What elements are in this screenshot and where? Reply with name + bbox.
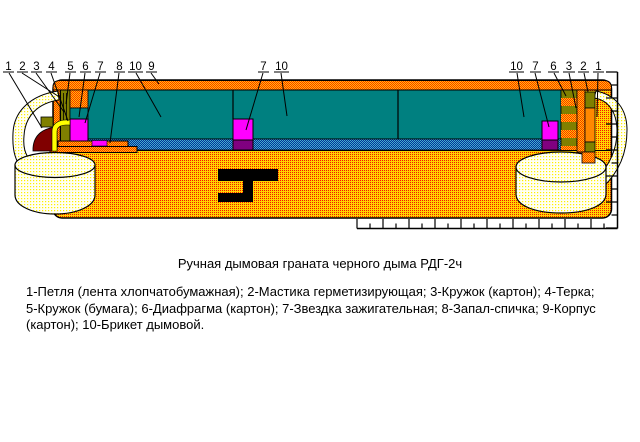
part-label-9: 9: [148, 61, 154, 73]
grenade-diagram: 1 2 3 4 5 6 7 8 10 9 7 10 10 7 6 3 2 1: [0, 0, 640, 248]
part-label-1: 1: [5, 61, 11, 73]
cardboard-disc-right-top: [585, 92, 595, 108]
cap-orange-block-left: [70, 90, 88, 108]
cap-checker-block-right: [582, 152, 595, 163]
part-labels-right: 10 7 6 3 2 1: [510, 61, 602, 73]
part-label-3-right: 3: [566, 61, 572, 73]
part-label-4: 4: [48, 61, 55, 73]
cardboard-disc-right-bottom: [585, 142, 595, 152]
smoke-briquette-group: [53, 90, 611, 151]
part-label-7: 7: [97, 61, 103, 73]
scraper-olive-column: [61, 90, 71, 142]
part-labels-left: 1 2 3 4 5 6 7 8 10 9: [5, 61, 154, 73]
part-label-7-mid: 7: [260, 61, 266, 73]
diaphragm-block-3: [561, 130, 577, 138]
part-label-10: 10: [129, 61, 142, 73]
screenshot-root: 1 2 3 4 5 6 7 8 10 9 7 10 10 7 6 3 2 1 Р…: [0, 0, 640, 442]
blue-layer-strip: [88, 139, 561, 150]
diaphragm-block-2: [561, 114, 577, 122]
fuse-match-head: [92, 141, 107, 147]
part-label-10-mid: 10: [275, 61, 288, 73]
ignition-star-middle-base: [233, 140, 253, 150]
part-label-10-right: 10: [510, 61, 523, 73]
diagram-title: Ручная дымовая граната черного дыма РДГ-…: [0, 256, 640, 272]
part-label-2-right: 2: [580, 61, 586, 73]
seal-olive-block: [41, 117, 53, 127]
ignition-star-right-base: [542, 140, 558, 150]
part-label-3: 3: [33, 61, 39, 73]
cap-orange-column-right: [577, 90, 585, 152]
diaphragm-block-4: [561, 146, 577, 150]
ignition-star-right: [542, 121, 558, 140]
part-label-7-right: 7: [532, 61, 538, 73]
body-top-wall: [53, 81, 612, 91]
part-label-5: 5: [67, 61, 73, 73]
tape-roll-left-top: [15, 153, 95, 178]
part-label-6-right: 6: [550, 61, 556, 73]
part-label-6: 6: [82, 61, 88, 73]
ignition-star-middle: [233, 119, 253, 140]
fuse-match-lower: [50, 147, 137, 153]
diagram-caption: 1-Петля (лента хлопчатобумажная); 2-Маст…: [26, 284, 630, 334]
part-labels-middle: 7 10: [260, 61, 288, 73]
smoke-briquette: [75, 90, 561, 139]
part-label-1-right: 1: [595, 61, 601, 73]
ruler-ticks-horizontal: [357, 219, 604, 229]
middle-star-group: [233, 119, 253, 150]
part-label-2: 2: [19, 61, 25, 73]
mastic-column-right: [585, 108, 595, 142]
part-label-8: 8: [116, 61, 122, 73]
